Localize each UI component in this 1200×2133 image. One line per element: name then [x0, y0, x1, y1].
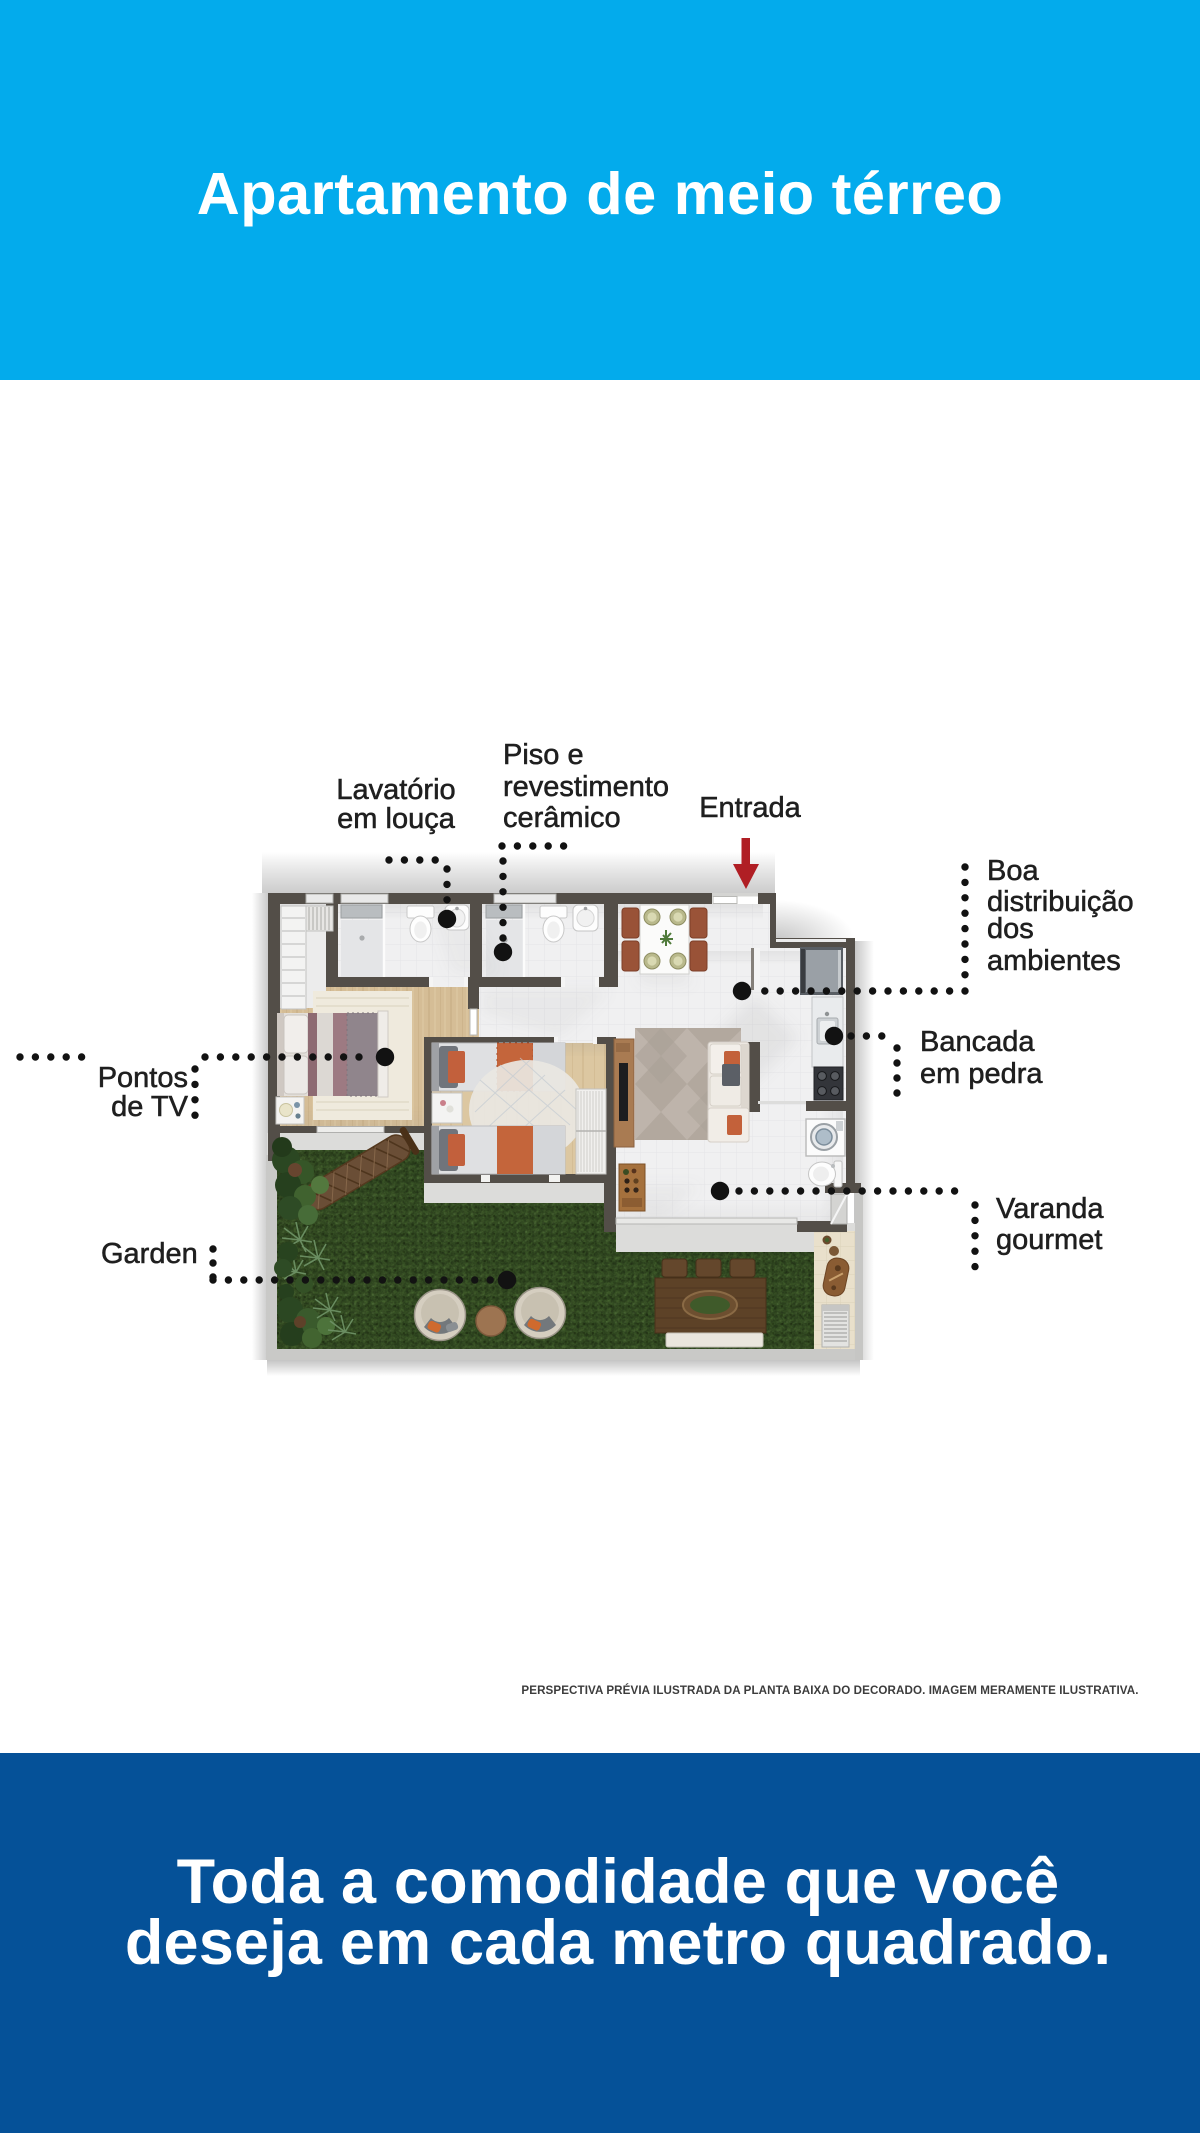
svg-text:Garden: Garden: [101, 1238, 198, 1270]
svg-text:Pontos: Pontos: [98, 1062, 188, 1094]
svg-text:revestimento: revestimento: [503, 771, 669, 803]
svg-text:Lavatório: Lavatório: [336, 774, 455, 806]
svg-text:gourmet: gourmet: [996, 1224, 1102, 1256]
svg-text:Piso e: Piso e: [503, 739, 584, 771]
svg-text:Boa: Boa: [987, 855, 1039, 887]
svg-text:em pedra: em pedra: [920, 1058, 1043, 1090]
svg-text:ambientes: ambientes: [987, 945, 1121, 977]
svg-text:Bancada: Bancada: [920, 1026, 1035, 1058]
svg-text:Entrada: Entrada: [699, 792, 801, 824]
svg-text:Varanda: Varanda: [996, 1193, 1104, 1225]
svg-text:dos: dos: [987, 913, 1034, 945]
svg-text:de TV: de TV: [111, 1091, 189, 1123]
svg-text:cerâmico: cerâmico: [503, 802, 621, 834]
svg-text:em louça: em louça: [337, 803, 456, 835]
